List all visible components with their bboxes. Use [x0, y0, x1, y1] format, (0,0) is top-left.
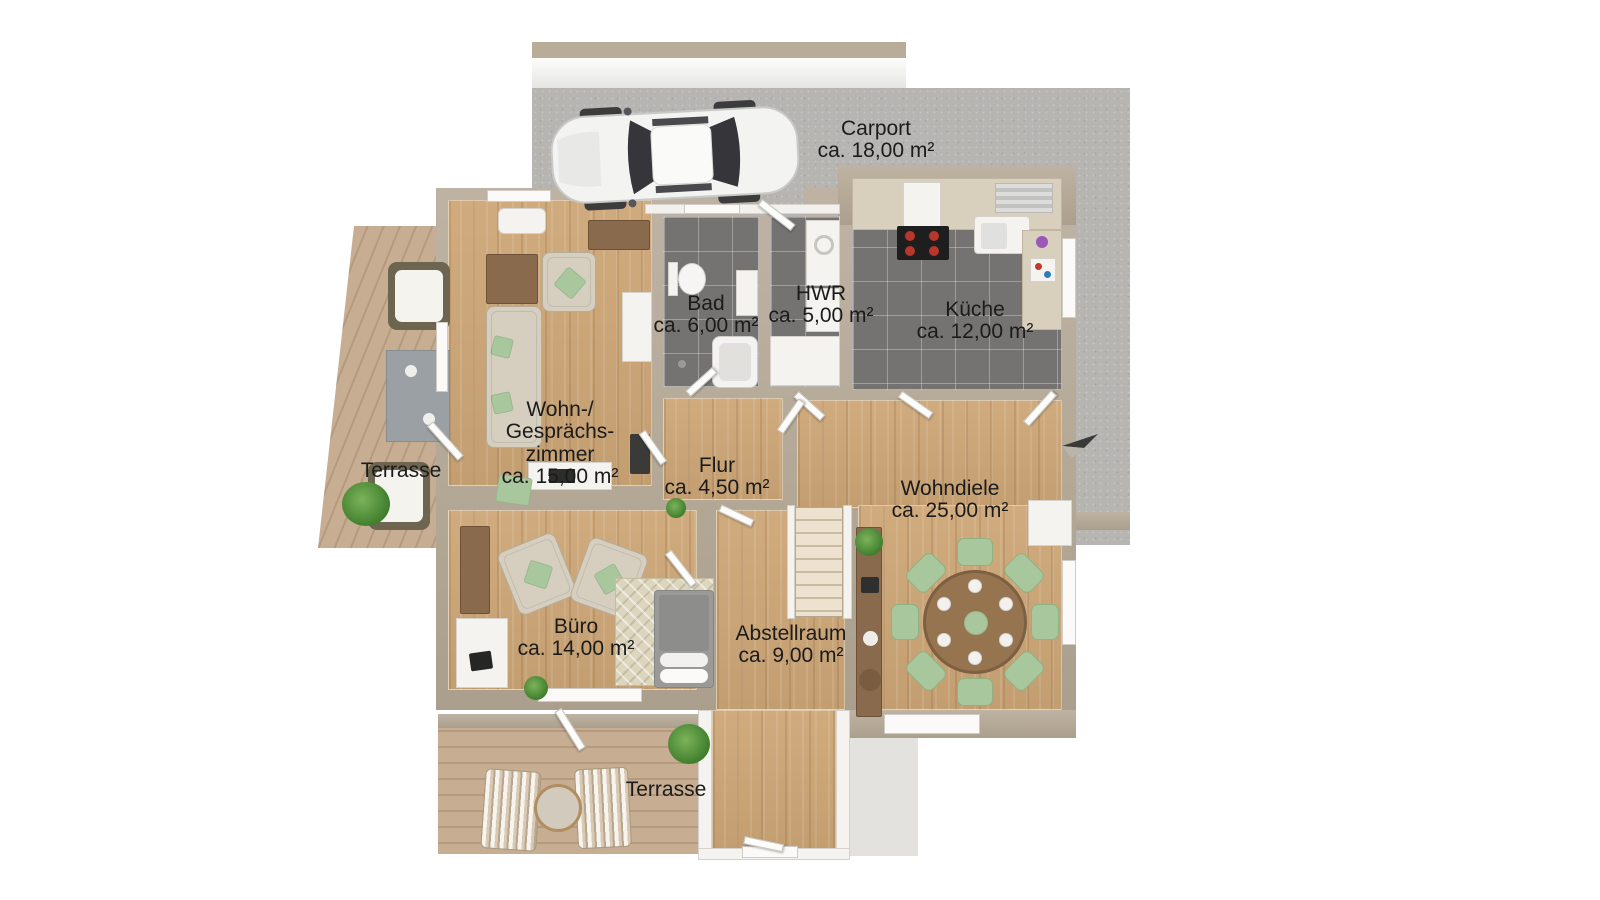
bed-pillow — [660, 653, 708, 667]
bathtub — [712, 336, 758, 388]
label-buero: Büro ca. 14,00 m² — [518, 616, 635, 661]
staircase — [795, 507, 843, 617]
cooktop — [897, 226, 949, 260]
label-terrasse-links: Terrasse — [361, 460, 442, 482]
sideboard-item — [861, 577, 879, 593]
burner — [905, 246, 915, 256]
room-area: ca. 14,00 m² — [518, 638, 635, 660]
kitchen-mat — [995, 183, 1053, 213]
toilet-bowl — [678, 263, 706, 295]
plate — [968, 651, 982, 665]
sideboard-item — [863, 631, 878, 646]
floor-plan: Carport ca. 18,00 m² Bad ca. 6,00 m² HWR… — [0, 0, 1600, 900]
room-name: Terrasse — [361, 460, 442, 482]
burner — [929, 231, 939, 241]
kitchen-tray — [1030, 258, 1056, 282]
terrace-bottom-plant — [668, 724, 710, 764]
label-wohndiele: Wohndiele ca. 25,00 m² — [892, 478, 1009, 523]
room-area: ca. 18,00 m² — [818, 140, 935, 162]
wohnzimmer-armchair — [542, 252, 596, 312]
terrace-round-table — [534, 784, 582, 832]
plate — [937, 597, 951, 611]
window-wohnzimmer-left — [436, 322, 448, 392]
dining-chair — [1031, 604, 1059, 640]
sun-lounger-1 — [480, 768, 541, 852]
shower-drain — [678, 360, 686, 368]
room-area: ca. 9,00 m² — [736, 645, 847, 667]
room-area: ca. 5,00 m² — [768, 305, 873, 327]
label-wohnzimmer: Wohn-/ Gesprächs- zimmer ca. 15,00 m² — [502, 399, 619, 488]
corridor-floor — [712, 710, 836, 850]
label-bad: Bad ca. 6,00 m² — [653, 293, 758, 338]
dining-chair — [957, 538, 993, 566]
room-area: ca. 15,00 m² — [502, 466, 619, 488]
room-name: Wohndiele — [892, 478, 1009, 500]
window-kueche-right — [1062, 238, 1076, 318]
side-entrance-niche — [1028, 500, 1072, 546]
label-flur: Flur ca. 4,50 m² — [664, 455, 769, 500]
bathtub-inner — [719, 343, 751, 381]
tray-item — [1044, 271, 1051, 278]
terrace-left-chair-1 — [388, 262, 450, 330]
sun-lounger-2 — [574, 767, 632, 850]
carport-slab-right — [1076, 88, 1130, 545]
label-abstellraum: Abstellraum ca. 9,00 m² — [736, 623, 847, 668]
table-centerpiece — [964, 611, 988, 635]
room-area: ca. 6,00 m² — [653, 315, 758, 337]
pillow — [553, 266, 587, 300]
kitchen-fridge — [903, 182, 941, 228]
pillow — [523, 559, 553, 589]
pillow — [490, 335, 514, 359]
burner — [905, 231, 915, 241]
washing-machine — [806, 220, 840, 286]
table-decor — [405, 365, 417, 377]
washer-door — [814, 235, 834, 255]
room-name: Carport — [818, 118, 935, 140]
chair-cushion — [395, 270, 443, 322]
sideboard-stool — [859, 669, 881, 691]
window-wohndiele-bottom — [884, 714, 980, 734]
side-slab — [848, 732, 918, 856]
plate — [968, 579, 982, 593]
room-area: ca. 25,00 m² — [892, 500, 1009, 522]
room-area: ca. 12,00 m² — [917, 321, 1034, 343]
room-area: ca. 4,50 m² — [664, 477, 769, 499]
room-name: Wohn-/ Gesprächs- zimmer — [502, 399, 619, 466]
dining-chair — [957, 678, 993, 706]
direction-arrow — [1058, 424, 1102, 468]
label-carport: Carport ca. 18,00 m² — [818, 118, 935, 163]
terrace-door-buero — [538, 688, 642, 702]
buero-plant — [524, 676, 548, 700]
laptop — [469, 651, 493, 672]
plate — [999, 597, 1013, 611]
burner — [929, 246, 939, 256]
sink-basin — [981, 223, 1007, 249]
room-name: Terrasse — [626, 779, 707, 801]
bed-pillow — [660, 669, 708, 683]
room-name: Flur — [664, 455, 769, 477]
flur-plant — [666, 498, 686, 518]
plate — [999, 633, 1013, 647]
label-hwr: HWR ca. 5,00 m² — [768, 283, 873, 328]
kitchen-flowers — [1036, 236, 1048, 248]
carport-step — [1076, 512, 1130, 530]
room-name: Abstellraum — [736, 623, 847, 645]
buero-wardrobe — [460, 526, 490, 614]
sideboard-plant — [855, 528, 883, 556]
stair-stringer-left — [787, 505, 795, 619]
window-wohndiele-right — [1062, 560, 1076, 645]
corridor-wall-right — [836, 710, 850, 860]
ceiling-lamp — [498, 208, 546, 234]
label-terrasse-unten: Terrasse — [626, 779, 707, 801]
bed-mattress — [659, 595, 709, 651]
wohnzimmer-sideboard — [588, 220, 650, 250]
terrace-left-grass — [342, 482, 390, 526]
room-name: HWR — [768, 283, 873, 305]
stair-stringer-right — [843, 505, 852, 619]
wohnzimmer-cabinet — [486, 254, 538, 304]
car — [545, 89, 806, 220]
bed — [654, 590, 714, 688]
dining-chair — [891, 604, 919, 640]
wohnzimmer-desk — [622, 292, 652, 362]
label-kueche: Küche ca. 12,00 m² — [917, 299, 1034, 344]
toilet-tank — [668, 262, 678, 296]
hwr-counter — [770, 336, 840, 386]
room-name: Büro — [518, 616, 635, 638]
room-name: Küche — [917, 299, 1034, 321]
room-name: Bad — [653, 293, 758, 315]
plate — [937, 633, 951, 647]
tray-item — [1035, 263, 1042, 270]
window-wohnzimmer-top — [487, 190, 551, 202]
